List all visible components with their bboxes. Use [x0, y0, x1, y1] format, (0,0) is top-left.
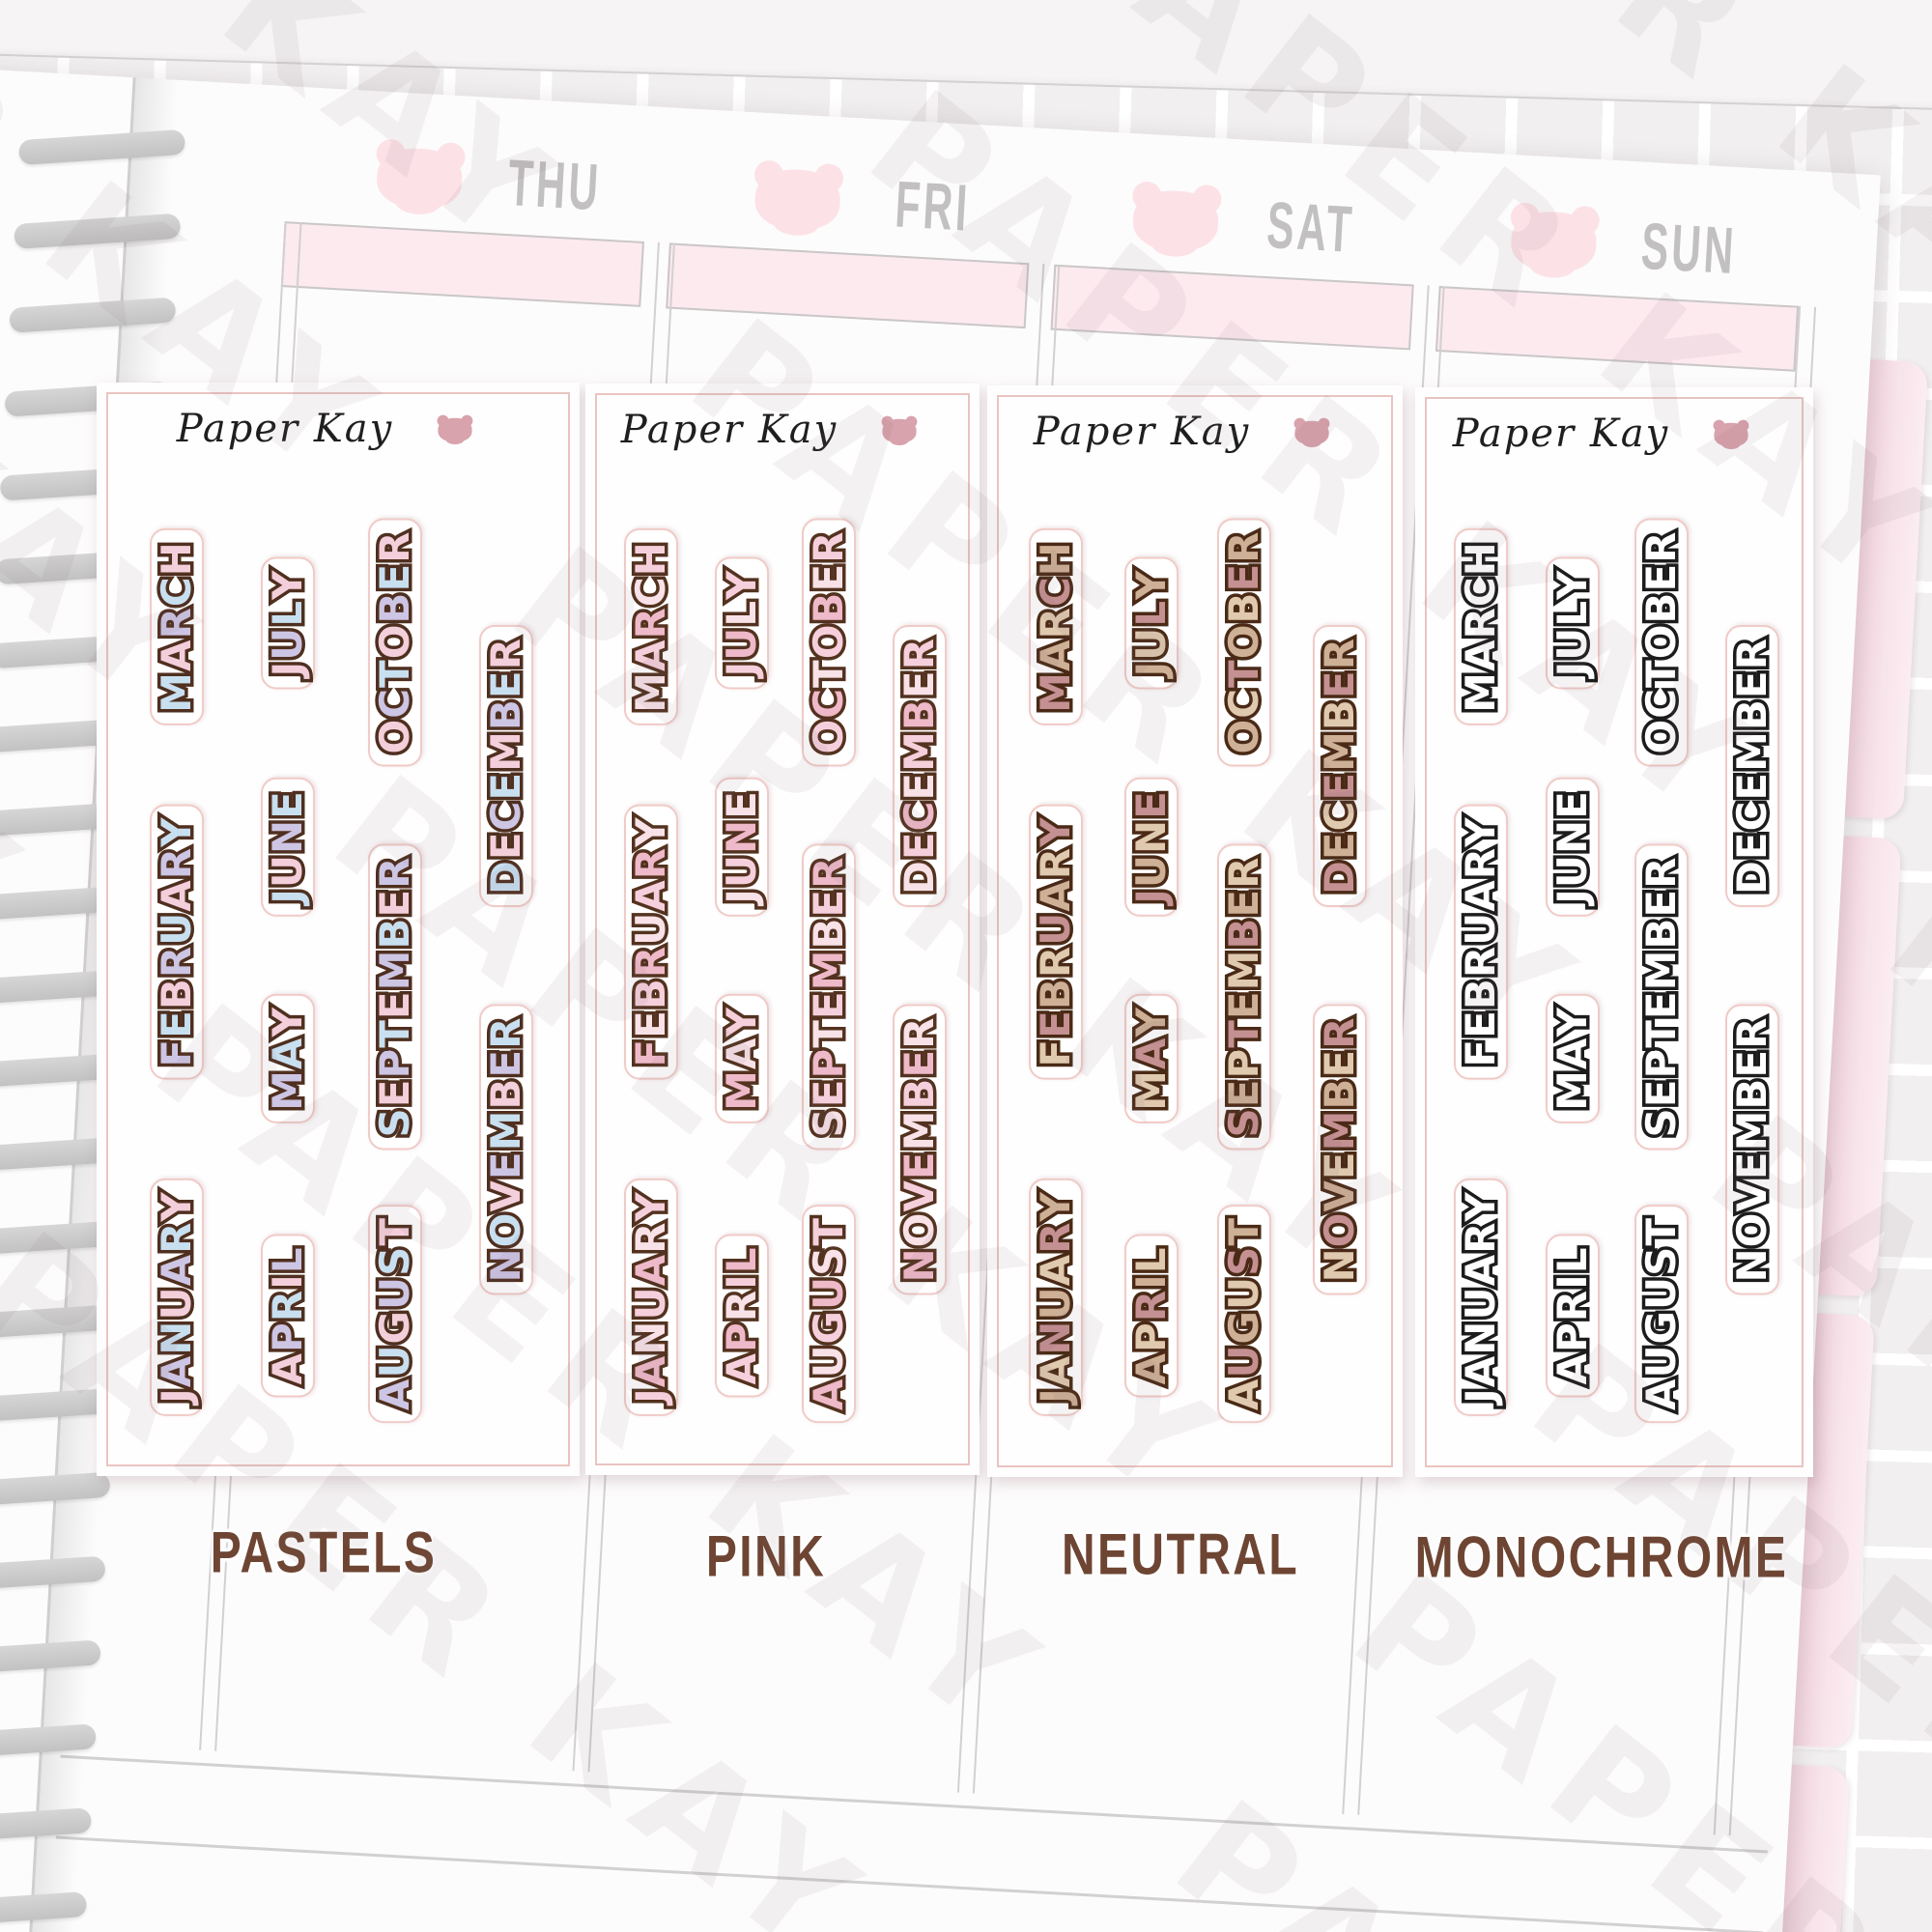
- month-sticker-word: DECEMBER: [479, 625, 533, 907]
- month-sticker-october: OCTOBER: [802, 519, 856, 767]
- month-sticker-word: AUGUST: [1634, 1205, 1689, 1423]
- month-letter: E: [486, 1151, 526, 1179]
- month-sticker-december: DECEMBER: [1725, 625, 1779, 907]
- month-letter: Y: [1552, 570, 1593, 600]
- month-letter: U: [809, 1344, 849, 1378]
- month-letter: A: [631, 879, 671, 912]
- month-letter: R: [1320, 1017, 1360, 1049]
- month-letter: P: [722, 1321, 762, 1352]
- month-letter: J: [1131, 661, 1172, 677]
- colourway-label-pastels: PASTELS: [211, 1520, 438, 1586]
- month-letter: E: [1732, 831, 1773, 860]
- month-letter: E: [1641, 1079, 1682, 1108]
- month-letter: J: [268, 661, 308, 677]
- month-letter: U: [268, 854, 308, 888]
- month-letter: R: [1461, 946, 1501, 978]
- month-letter: E: [809, 1079, 849, 1108]
- month-letter: A: [1131, 1352, 1172, 1385]
- month-letter: M: [486, 730, 526, 772]
- month-letter: C: [809, 688, 849, 719]
- month-letter: R: [1131, 1290, 1172, 1321]
- month-letter: R: [631, 847, 671, 879]
- month-sticker-july: JULY: [1124, 557, 1179, 690]
- month-letter: Y: [156, 816, 197, 846]
- month-sticker-may: MAY: [1546, 994, 1600, 1123]
- month-letter: E: [1224, 990, 1264, 1019]
- month-letter: E: [1641, 990, 1682, 1019]
- month-letter: P: [268, 1321, 308, 1352]
- month-sticker-november: NOVEMBER: [479, 1005, 533, 1295]
- month-letter: E: [631, 1009, 671, 1038]
- month-letter: E: [1320, 772, 1360, 801]
- month-letter: N: [1732, 1247, 1773, 1282]
- month-letter: A: [631, 639, 671, 672]
- month-letter: Y: [631, 1191, 671, 1221]
- month-letter: Y: [722, 1007, 762, 1037]
- month-letter: B: [1320, 1078, 1360, 1110]
- month-letter: J: [722, 661, 762, 677]
- month-letter: M: [809, 950, 849, 991]
- month-letter: B: [899, 1078, 940, 1110]
- month-sticker-september: SEPTEMBER: [1634, 844, 1689, 1151]
- month-letter: U: [1224, 1344, 1264, 1378]
- month-letter: U: [722, 854, 762, 888]
- month-sticker-september: SEPTEMBER: [1217, 844, 1271, 1151]
- month-letter: A: [809, 1378, 849, 1411]
- month-letter: P: [1224, 1048, 1264, 1079]
- month-letter: J: [722, 888, 762, 904]
- sticker-sheet-pink: Paper KayJANUARYFEBRUARYMARCHAPRILMAYJUN…: [585, 384, 980, 1475]
- month-letter: B: [631, 978, 671, 1009]
- month-sticker-word: NOVEMBER: [1725, 1005, 1779, 1295]
- month-letter: E: [1320, 1151, 1360, 1179]
- month-letter: M: [1320, 1110, 1360, 1151]
- month-sticker-word: SEPTEMBER: [368, 844, 422, 1151]
- month-sticker-word: AUGUST: [368, 1205, 422, 1423]
- month-letter: U: [809, 1276, 849, 1310]
- month-letter: A: [268, 1352, 308, 1385]
- month-letter: M: [375, 950, 415, 991]
- month-letter: F: [1461, 1038, 1501, 1067]
- month-letter: B: [375, 592, 415, 624]
- month-letter: I: [1131, 1273, 1172, 1290]
- month-sticker-word: FEBRUARY: [624, 804, 678, 1079]
- month-sticker-november: NOVEMBER: [1313, 1005, 1367, 1295]
- month-letter: R: [1224, 531, 1264, 563]
- month-sticker-word: OCTOBER: [1217, 519, 1271, 767]
- month-letter: R: [268, 1290, 308, 1321]
- month-sticker-word: MARCH: [1454, 528, 1508, 725]
- month-letter: N: [268, 819, 308, 854]
- month-sticker-october: OCTOBER: [1634, 519, 1689, 767]
- month-letter: B: [1224, 918, 1264, 950]
- month-letter: S: [1224, 1107, 1264, 1137]
- month-letter: C: [375, 688, 415, 719]
- month-sticker-february: FEBRUARY: [150, 804, 204, 1079]
- month-letter: O: [1732, 1212, 1773, 1248]
- month-sticker-april: APRIL: [261, 1234, 315, 1397]
- month-letter: E: [486, 669, 526, 698]
- month-letter: D: [899, 860, 940, 895]
- month-letter: L: [1131, 600, 1172, 627]
- month-letter: U: [631, 1286, 671, 1320]
- month-letter: O: [809, 624, 849, 660]
- month-letter: E: [809, 889, 849, 918]
- month-letter: N: [156, 1321, 197, 1355]
- month-letter: B: [1224, 592, 1264, 624]
- month-letter: R: [1320, 638, 1360, 669]
- month-letter: C: [631, 576, 671, 607]
- month-letter: A: [1036, 1355, 1076, 1388]
- month-letter: H: [156, 541, 197, 576]
- month-letter: B: [486, 698, 526, 730]
- month-letter: B: [809, 918, 849, 950]
- month-letter: G: [375, 1310, 415, 1344]
- month-letter: M: [899, 1110, 940, 1151]
- month-letter: U: [1224, 1276, 1264, 1310]
- bear-ear-r: [813, 163, 844, 194]
- month-letter: A: [268, 1037, 308, 1070]
- month-letter: U: [631, 912, 671, 946]
- bear-muzzle: [1722, 440, 1741, 449]
- month-letter: R: [1036, 847, 1076, 879]
- month-letter: M: [1036, 671, 1076, 713]
- month-letter: C: [1224, 688, 1264, 719]
- month-letter: M: [486, 1110, 526, 1151]
- month-letter: C: [156, 576, 197, 607]
- month-letter: U: [375, 1276, 415, 1310]
- month-letter: C: [1732, 801, 1773, 832]
- sheet-logo: Paper Kay: [585, 399, 980, 461]
- month-letter: B: [1732, 698, 1773, 730]
- month-letter: B: [1641, 592, 1682, 624]
- month-letter: C: [1641, 688, 1682, 719]
- month-letter: Y: [1131, 1007, 1172, 1037]
- month-letter: U: [156, 1286, 197, 1320]
- month-letter: R: [1641, 531, 1682, 563]
- month-sticker-word: JULY: [715, 557, 769, 690]
- bear-icon: [752, 159, 844, 234]
- month-letter: E: [1224, 889, 1264, 918]
- sheet-logo: Paper Kay: [1415, 403, 1813, 465]
- month-letter: M: [899, 730, 940, 772]
- month-letter: J: [156, 1387, 197, 1404]
- month-letter: T: [1224, 1019, 1264, 1048]
- month-letter: E: [809, 990, 849, 1019]
- month-letter: E: [1641, 563, 1682, 592]
- month-sticker-may: MAY: [1124, 994, 1179, 1123]
- month-letter: N: [1461, 1321, 1501, 1355]
- month-letter: N: [1131, 819, 1172, 854]
- month-letter: R: [156, 847, 197, 879]
- month-letter: L: [1131, 1246, 1172, 1273]
- month-letter: I: [268, 1273, 308, 1290]
- month-sticker-january: JANUARY: [624, 1179, 678, 1416]
- month-letter: N: [486, 1247, 526, 1282]
- month-sticker-word: APRIL: [1124, 1234, 1179, 1397]
- month-letter: A: [1036, 879, 1076, 912]
- month-letter: T: [1641, 659, 1682, 688]
- bear-icon: [1714, 420, 1749, 448]
- month-letter: R: [375, 857, 415, 889]
- month-letter: U: [1552, 854, 1593, 888]
- month-letter: E: [1461, 1009, 1501, 1038]
- month-sticker-word: DECEMBER: [893, 625, 947, 907]
- month-sticker-word: APRIL: [1546, 1234, 1600, 1397]
- month-letter: E: [486, 1049, 526, 1078]
- month-letter: R: [1461, 1222, 1501, 1254]
- bear-icon: [1508, 202, 1601, 276]
- month-letter: R: [722, 1290, 762, 1321]
- month-letter: S: [809, 1246, 849, 1276]
- month-letter: M: [631, 671, 671, 713]
- month-sticker-word: MAY: [261, 994, 315, 1123]
- month-sticker-word: FEBRUARY: [1454, 804, 1508, 1079]
- weekday-header-bar: [1051, 265, 1414, 351]
- month-sticker-march: MARCH: [1454, 528, 1508, 725]
- month-letter: F: [631, 1038, 671, 1067]
- weekday-header-bar: [1435, 286, 1799, 372]
- month-letter: O: [809, 719, 849, 754]
- month-letter: A: [1552, 1037, 1593, 1070]
- month-letter: A: [1461, 1254, 1501, 1287]
- month-letter: E: [722, 790, 762, 819]
- month-letter: T: [1224, 659, 1264, 688]
- month-letter: B: [1036, 978, 1076, 1009]
- month-letter: E: [486, 772, 526, 801]
- month-letter: I: [722, 1273, 762, 1290]
- month-sticker-march: MARCH: [1029, 528, 1083, 725]
- month-letter: D: [486, 860, 526, 895]
- month-letter: U: [1036, 1286, 1076, 1320]
- month-letter: L: [722, 1246, 762, 1273]
- month-letter: O: [1641, 719, 1682, 754]
- month-letter: M: [1320, 730, 1360, 772]
- month-letter: C: [1320, 801, 1360, 832]
- month-letter: A: [1036, 1254, 1076, 1287]
- bear-icon: [1129, 181, 1222, 255]
- bear-icon: [882, 416, 918, 444]
- month-letter: V: [899, 1179, 940, 1212]
- month-letter: M: [1552, 1069, 1593, 1111]
- month-letter: E: [1732, 772, 1773, 801]
- month-sticker-september: SEPTEMBER: [368, 844, 422, 1151]
- month-sticker-word: FEBRUARY: [1029, 804, 1083, 1079]
- bear-ear-r: [1192, 185, 1223, 215]
- month-letter: R: [1036, 607, 1076, 639]
- month-letter: B: [1320, 698, 1360, 730]
- month-sticker-april: APRIL: [1546, 1234, 1600, 1397]
- month-letter: R: [809, 857, 849, 889]
- month-sticker-january: JANUARY: [1029, 1179, 1083, 1416]
- month-letter: R: [1461, 847, 1501, 879]
- month-sticker-november: NOVEMBER: [1725, 1005, 1779, 1295]
- month-sticker-word: SEPTEMBER: [802, 844, 856, 1151]
- month-sticker-may: MAY: [261, 994, 315, 1123]
- month-letter: E: [809, 563, 849, 592]
- month-letter: B: [1732, 1078, 1773, 1110]
- month-sticker-word: OCTOBER: [368, 519, 422, 767]
- month-letter: Y: [268, 1007, 308, 1037]
- month-letter: H: [631, 541, 671, 576]
- month-letter: H: [1461, 541, 1501, 576]
- month-letter: M: [1641, 950, 1682, 991]
- month-sticker-september: SEPTEMBER: [802, 844, 856, 1151]
- sheet-logo: Paper Kay: [987, 401, 1403, 463]
- month-letter: H: [1036, 541, 1076, 576]
- month-sticker-word: DECEMBER: [1313, 625, 1367, 907]
- month-letter: Y: [1131, 570, 1172, 600]
- month-letter: N: [1036, 1321, 1076, 1355]
- month-letter: G: [809, 1310, 849, 1344]
- month-letter: V: [1732, 1179, 1773, 1212]
- month-letter: E: [1641, 889, 1682, 918]
- month-letter: N: [1552, 819, 1593, 854]
- month-letter: E: [375, 990, 415, 1019]
- month-letter: R: [631, 607, 671, 639]
- month-letter: O: [486, 1212, 526, 1248]
- month-sticker-word: JUNE: [1546, 778, 1600, 917]
- month-letter: R: [809, 531, 849, 563]
- month-sticker-word: MAY: [715, 994, 769, 1123]
- month-letter: R: [156, 946, 197, 978]
- month-letter: Y: [268, 570, 308, 600]
- month-letter: P: [375, 1048, 415, 1079]
- month-letter: R: [631, 1222, 671, 1254]
- month-sticker-december: DECEMBER: [893, 625, 947, 907]
- month-letter: Y: [722, 570, 762, 600]
- month-letter: S: [809, 1107, 849, 1137]
- month-letter: J: [1552, 888, 1593, 904]
- month-letter: U: [1641, 1276, 1682, 1310]
- month-letter: R: [1641, 857, 1682, 889]
- month-letter: E: [1732, 1049, 1773, 1078]
- brand-logo-text: Paper Kay: [1034, 410, 1250, 454]
- month-letter: S: [1224, 1246, 1264, 1276]
- month-letter: A: [156, 1254, 197, 1287]
- month-letter: A: [631, 1254, 671, 1287]
- bear-ear-r: [436, 142, 467, 173]
- month-sticker-word: MAY: [1546, 994, 1600, 1123]
- month-letter: U: [722, 627, 762, 661]
- month-letter: O: [1641, 624, 1682, 660]
- month-letter: V: [1320, 1179, 1360, 1212]
- month-letter: A: [375, 1378, 415, 1411]
- month-sticker-november: NOVEMBER: [893, 1005, 947, 1295]
- month-letter: T: [809, 659, 849, 688]
- bear-ear-r: [1570, 205, 1601, 236]
- month-letter: E: [1224, 1079, 1264, 1108]
- month-letter: E: [1320, 669, 1360, 698]
- month-letter: A: [631, 1355, 671, 1388]
- month-sticker-word: JUNE: [715, 778, 769, 917]
- month-sticker-april: APRIL: [715, 1234, 769, 1397]
- colourway-label-pink: PINK: [706, 1523, 826, 1590]
- month-sticker-june: JUNE: [715, 778, 769, 917]
- month-sticker-june: JUNE: [1546, 778, 1600, 917]
- month-letter: R: [486, 1017, 526, 1049]
- month-letter: E: [1732, 669, 1773, 698]
- month-sticker-august: AUGUST: [802, 1205, 856, 1423]
- month-letter: A: [1552, 1352, 1593, 1385]
- month-letter: M: [268, 1069, 308, 1111]
- month-sticker-word: DECEMBER: [1725, 625, 1779, 907]
- month-letter: S: [375, 1107, 415, 1137]
- month-letter: U: [1131, 627, 1172, 661]
- month-letter: E: [486, 831, 526, 860]
- month-letter: A: [1036, 639, 1076, 672]
- month-letter: Y: [1036, 1191, 1076, 1221]
- month-letter: R: [1224, 857, 1264, 889]
- month-letter: P: [1131, 1321, 1172, 1352]
- month-letter: G: [1224, 1310, 1264, 1344]
- month-letter: L: [722, 600, 762, 627]
- product-photo: THUFRISATSUN Paper KayJANUARYFEBRUARYMAR…: [0, 0, 1932, 1932]
- month-letter: F: [156, 1038, 197, 1067]
- month-letter: O: [1224, 624, 1264, 660]
- sticker-sheet-neutral: Paper KayJANUARYFEBRUARYMARCHAPRILMAYJUN…: [987, 385, 1403, 1477]
- month-letter: U: [1641, 1344, 1682, 1378]
- month-letter: E: [1320, 831, 1360, 860]
- month-sticker-word: JANUARY: [624, 1179, 678, 1416]
- month-letter: E: [1131, 790, 1172, 819]
- month-sticker-word: JANUARY: [1029, 1179, 1083, 1416]
- month-letter: M: [1732, 730, 1773, 772]
- weekday-header-bar: [281, 221, 644, 307]
- month-letter: B: [899, 698, 940, 730]
- month-letter: U: [1131, 854, 1172, 888]
- month-letter: M: [722, 1069, 762, 1111]
- month-sticker-december: DECEMBER: [479, 625, 533, 907]
- month-letter: E: [375, 563, 415, 592]
- month-letter: E: [899, 831, 940, 860]
- month-sticker-word: JANUARY: [1454, 1179, 1508, 1416]
- month-letter: E: [1732, 1151, 1773, 1179]
- month-letter: T: [1224, 1217, 1264, 1246]
- month-sticker-october: OCTOBER: [1217, 519, 1271, 767]
- month-sticker-august: AUGUST: [1217, 1205, 1271, 1423]
- month-letter: M: [156, 671, 197, 713]
- month-letter: Y: [631, 816, 671, 846]
- month-letter: S: [1641, 1107, 1682, 1137]
- month-letter: Y: [1552, 1007, 1593, 1037]
- month-letter: T: [375, 659, 415, 688]
- month-letter: B: [809, 592, 849, 624]
- month-sticker-word: MARCH: [1029, 528, 1083, 725]
- month-letter: P: [1552, 1321, 1593, 1352]
- month-sticker-october: OCTOBER: [368, 519, 422, 767]
- month-letter: T: [375, 1019, 415, 1048]
- month-letter: P: [1641, 1048, 1682, 1079]
- month-letter: J: [1131, 888, 1172, 904]
- month-letter: A: [156, 879, 197, 912]
- month-letter: O: [1224, 719, 1264, 754]
- month-letter: E: [899, 1049, 940, 1078]
- month-letter: E: [375, 1079, 415, 1108]
- month-letter: N: [899, 1247, 940, 1282]
- sticker-sheet-pastels: Paper KayJANUARYFEBRUARYMARCHAPRILMAYJUN…: [97, 383, 580, 1476]
- month-letter: R: [1036, 1222, 1076, 1254]
- month-letter: A: [722, 1352, 762, 1385]
- month-letter: C: [899, 801, 940, 832]
- month-letter: E: [375, 889, 415, 918]
- month-sticker-march: MARCH: [150, 528, 204, 725]
- month-sticker-word: JULY: [1546, 557, 1600, 690]
- month-sticker-june: JUNE: [1124, 778, 1179, 917]
- month-letter: Y: [1461, 1191, 1501, 1221]
- month-letter: A: [722, 1037, 762, 1070]
- month-sticker-word: NOVEMBER: [479, 1005, 533, 1295]
